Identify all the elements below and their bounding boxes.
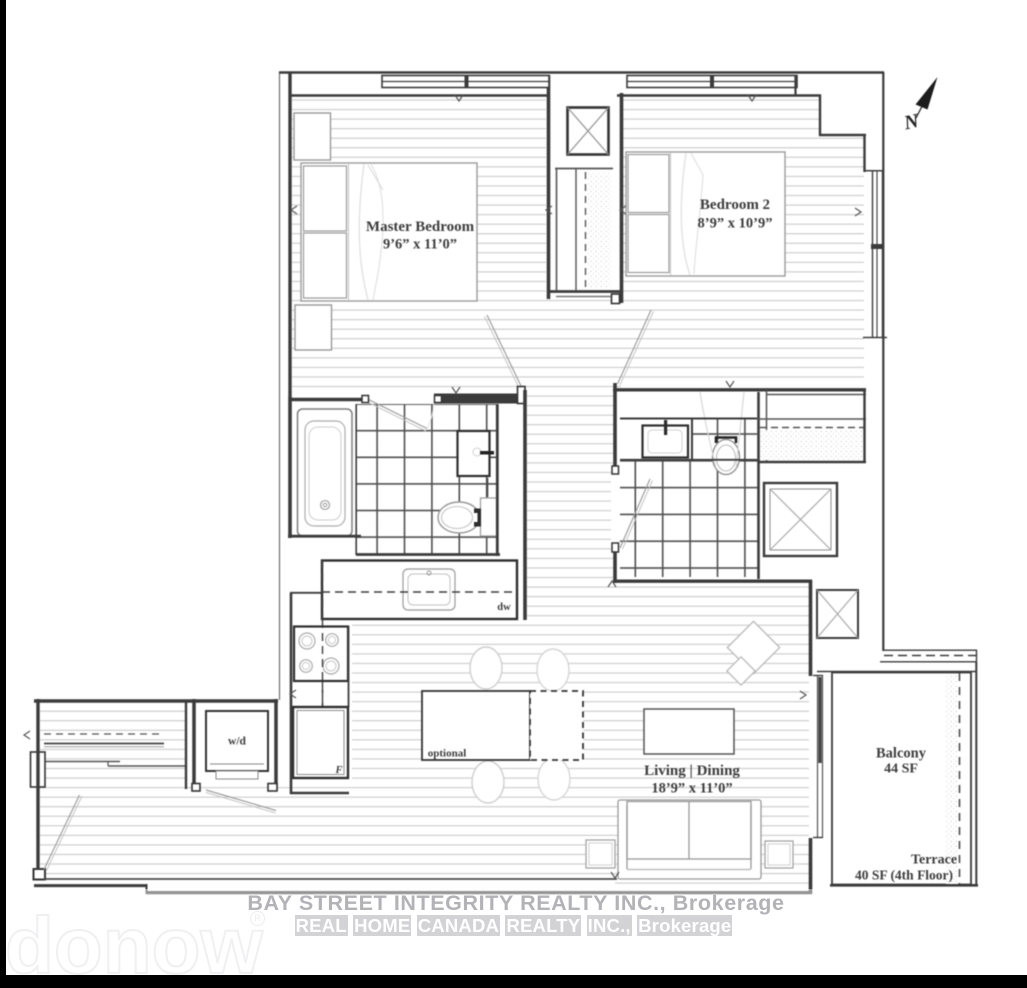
svg-text:18’9” x 11’0”: 18’9” x 11’0” [651, 781, 732, 797]
svg-text:Living | Dining: Living | Dining [644, 763, 740, 779]
svg-text:dw: dw [497, 602, 511, 613]
svg-text:Balcony: Balcony [876, 746, 927, 762]
svg-text:40 SF (4th Floor): 40 SF (4th Floor) [855, 868, 953, 883]
svg-text:Master Bedroom: Master Bedroom [366, 219, 475, 235]
svg-text:Bedroom 2: Bedroom 2 [700, 197, 770, 213]
svg-text:9’6” x 11’0”: 9’6” x 11’0” [383, 237, 457, 253]
svg-text:8’9” x 10’9”: 8’9” x 10’9” [698, 216, 773, 232]
svg-text:Terrace: Terrace [911, 853, 957, 868]
svg-text:w/d: w/d [228, 736, 247, 748]
svg-text:optional: optional [428, 748, 467, 760]
svg-text:F: F [334, 765, 342, 776]
svg-text:44 SF: 44 SF [884, 762, 918, 777]
